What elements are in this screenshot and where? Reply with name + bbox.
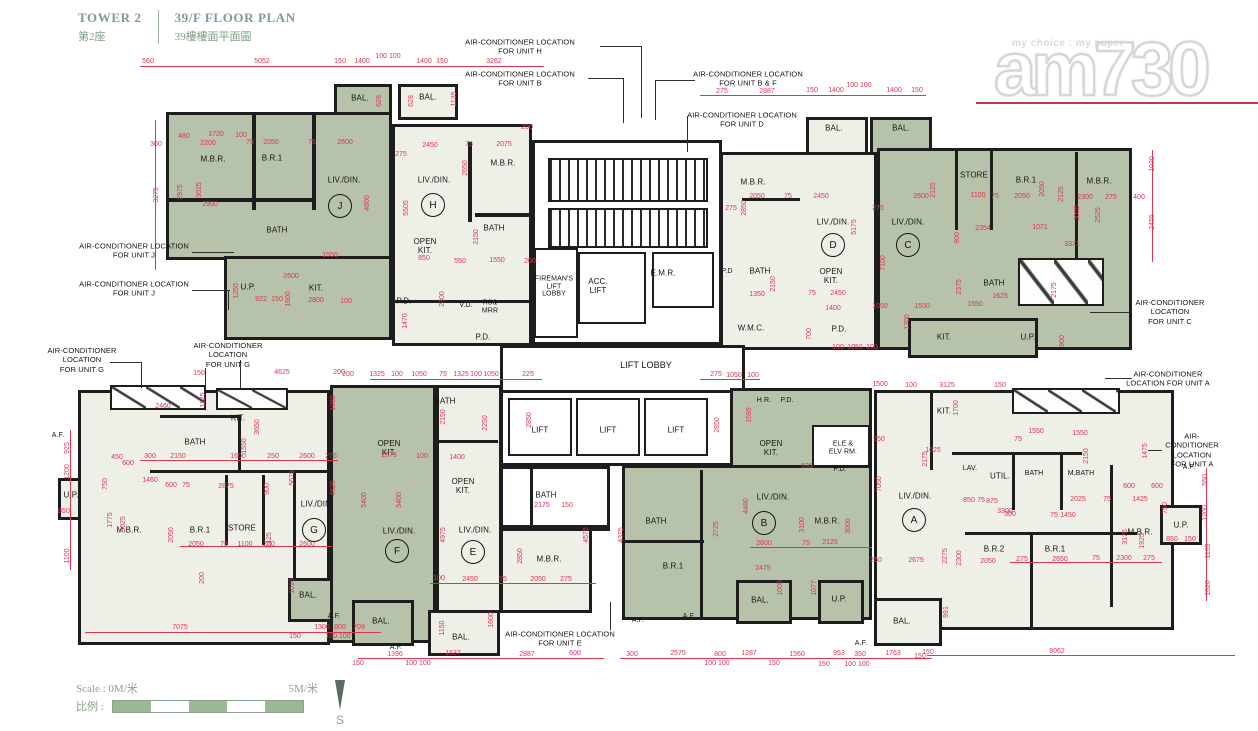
dimension-label: 2850 [517,548,525,564]
dimension-label: 1595 [746,407,754,423]
dimension-label: 900 [954,232,962,244]
scale-segment [227,701,265,712]
ac-callout-label: AIR-CONDITIONER LOCATION FOR UNIT E [505,630,615,649]
room-label: BATH [1025,470,1044,478]
dimension-label: 3000 [845,518,853,534]
scale-segment [265,701,303,712]
room-label: LIV./DIN. [418,177,451,186]
af-label: A.F. [52,432,64,440]
dimension-label: 275 [716,88,728,96]
dimension-label: 4975 [440,527,448,543]
room-label: LIV./DIN. [328,177,361,186]
dimension-label: 560 [142,58,154,66]
room-label: M.BATH [1068,470,1095,478]
room-label: ELE & ELV RM. [829,440,857,455]
dimension-label: 2600 [299,453,315,461]
dimension-label: 1470 [402,313,410,329]
dimension-label: 1400 [825,305,841,313]
dimension-label: 4800 [364,195,372,211]
wall-segment [990,150,993,230]
room-label: KIT. [937,334,951,343]
dimension-label: 5400 [361,492,369,508]
room-label: STORE [960,172,988,181]
dimension-label: 1925 [1139,533,1147,549]
dimension-label: 75 [308,139,316,147]
dimension-label: 1287 [741,650,757,658]
dimension-label: 275 [725,205,737,213]
dimension-label: 100 [905,382,917,390]
room-label: BATH [983,280,1004,289]
dimension-label: 1425 [1132,496,1148,504]
dimension-label: 2250 [482,415,490,431]
wall-segment [252,115,256,210]
dimension-label: 1050 [726,372,742,380]
dimension-label: 1350 [749,291,765,299]
dimension-label: 75 [499,576,507,584]
dimension-label: 3300 [997,508,1013,516]
dimension-label: 2575 [670,650,686,658]
dimension-label: 100 100 [325,633,350,641]
dimension-label: 75 [802,540,810,548]
room-label: W.M.C. [738,325,765,334]
dimension-label: 2600 [299,541,315,549]
scale-ratio-label: 比例 : [76,698,104,714]
wall-segment [475,213,530,217]
ac-platform [216,388,288,410]
room-label: P.D. [833,466,846,474]
wall-segment [436,440,498,443]
dimension-label: 300 [626,651,638,659]
room-label: P.D. [780,397,793,405]
dimension-label: 628 [376,95,384,107]
dimension-label: 75 [465,141,473,149]
dimension-label: 1537 [445,650,461,658]
leader-line [192,252,234,253]
wall-segment [930,392,933,470]
dimension-label: 4625 [274,369,290,377]
af-label: A.F. [683,613,695,621]
dimension-label: 800 [334,624,346,632]
room-label: B.R.1 [1045,546,1066,555]
dimension-label: 75 [439,371,447,379]
dimension-label: 150 [1184,536,1196,544]
dimension-label: 2300 [1077,194,1093,202]
room-label: LIV./DIN. [459,527,492,536]
room-label: OPEN KIT. [413,238,436,256]
dimension-label: 850 [58,508,70,516]
wall-segment [468,142,472,222]
ac-callout-label: AIR-CONDITIONER LOCATION FOR UNIT H [465,38,575,57]
dimension-label: 700 [806,328,814,340]
dimension-label: 275 [560,576,572,584]
dimension-label: 2050 [263,139,279,147]
dimension-label: 550 [1202,474,1210,486]
dimension-label: 2575 [381,452,397,460]
dimension-label: 75 [1103,496,1111,504]
dimension-label: 850 [963,497,975,505]
plan-canvas: BAL.BAL.M.B.R.B.R.1LIV./DIN.BATHU.P.KIT.… [0,0,1258,731]
dimension-label: 1077 [811,580,819,596]
dimension-label: 2475 [755,565,771,573]
dimension-label: 2950 [202,201,218,209]
dimension-label: 7075 [172,624,188,632]
south-arrow-icon [335,680,345,710]
dimension-label: 250 [870,557,882,565]
room-label: UTIL. [990,473,1010,482]
dimension-label: 2450 [422,142,438,150]
room-label: BAL. [452,634,470,643]
room-label: M.B.R. [200,156,225,165]
dimension-label: 1005 [777,580,785,596]
ac-callout-label: AIR-CONDITIONER LOCATION FOR UNIT G [194,341,263,369]
dimension-label: 75 [784,193,792,201]
room-label: U.P. [241,284,256,293]
wall-segment [168,198,313,202]
dimension-label: 1400 [416,58,432,66]
dimension-label: 1020 [1205,580,1213,596]
dimension-label: 7050 [876,476,884,492]
room-label: OPEN KIT. [759,440,782,458]
dimension-label: 2450 [462,576,478,584]
dimension-label: 1050 [330,395,338,411]
dimension-label: 1100 [64,548,72,563]
dimension-label: 2725 [713,521,721,537]
dimension-label: 1550 [1072,430,1088,438]
room-label: BATH [184,439,205,448]
dimension-label: 275 [872,205,884,213]
ac-callout-label: AIR-CONDITIONER LOCATION FOR UNIT B & F [693,70,803,89]
room-label: B.R.1 [663,563,684,572]
dimension-label: 628 [408,95,416,107]
dimension-label: 3175 [1122,529,1130,545]
dimension-label: 800 [714,651,726,659]
dimension-label: 3025 [120,516,128,532]
emr-room [652,252,714,308]
room-label: LIFT [600,427,617,436]
unit-c-kitchen [908,318,1038,358]
dimension-label: 3650 [254,419,262,435]
dimension-label: 709 [353,624,365,632]
room-label: LIV./DIN. [301,501,334,510]
dimension-label: 2887 [519,651,535,659]
dimension-label: 75 [182,482,190,490]
wall-segment [160,415,240,418]
scale-segment [113,701,151,712]
dimension-label: 1010 [289,578,297,594]
dimension-label: 100 [470,371,482,379]
dimension-label: 2450 [813,193,829,201]
unit-circle-h: H [421,193,445,217]
unit-e-mbr [500,528,592,613]
room-label: BAL. [299,592,317,601]
ac-callout-label: AIR-CONDITIONER LOCATION FOR UNIT G [48,346,117,374]
dimension-label: 2125 [930,182,938,198]
dimension-label: 1400 [449,454,465,462]
dimension-line [620,658,932,659]
room-label: B.R.1 [262,155,283,164]
dimension-line [370,379,542,380]
dimension-label: 150 [193,370,205,378]
room-label: OPEN KIT. [451,478,474,496]
wall-segment [700,470,703,618]
dimension-label: 750 [102,478,110,490]
wall-segment [1030,532,1033,627]
dimension-label: 2125 [1058,186,1066,202]
dimension-label: 150 [271,296,283,304]
dimension-label: 5052 [254,58,270,66]
dimension-label: 2050 [980,558,996,566]
dimension-label: 75 [1050,512,1058,520]
dimension-label: 1125 [200,392,208,407]
dimension-label: 2050 [188,541,204,549]
dimension-label: 300 [150,141,162,149]
dimension-line [1010,562,1162,563]
dimension-label: 100 [416,453,428,461]
dimension-label: 5675 [289,470,297,486]
dimension-label: 480 [178,133,190,141]
dimension-line [452,66,544,67]
dimension-label: 1050 [872,303,888,311]
unit-circle-a: A [902,508,926,532]
dimension-label: 1700 [953,400,961,416]
dimension-label: 1475 [1142,443,1150,459]
dimension-label: 1100 [237,541,252,549]
dimension-label: 1400 [828,87,844,95]
ac-callout-label: AIR-CONDITIONER LOCATION FOR UNIT J [79,242,189,261]
dimension-label: 1560 [789,651,805,659]
dimension-label: 2450 [830,290,846,298]
dimension-label: 5175 [851,219,859,235]
room-label: U.P. [832,596,847,605]
scale-label-start: Scale : 0M/米 [76,680,138,696]
dimension-label: 75 [220,541,228,549]
dimension-label: 1700 [904,314,912,330]
ac-platform [1018,258,1104,306]
dimension-label: 250 [263,541,275,549]
dimension-label: 150 [806,87,818,95]
dimension-label: 2455 [1149,214,1157,230]
leader-line [228,290,229,310]
dimension-label: 900 [264,483,272,495]
room-label: E.M.R. [650,270,675,279]
dimension-line [140,66,452,67]
dimension-label: 2075 [496,141,512,149]
dimension-label: 635 [801,463,813,471]
dimension-label: 2875 [218,483,234,491]
wall-segment [500,528,610,531]
ac-callout-label: AIR-CONDITIONER LOCATION FOR UNIT J [79,280,189,299]
dimension-label: 275 [325,453,337,461]
dimension-label: 1550 [1028,428,1044,436]
room-label: LIFT [532,427,549,436]
dimension-label: 200 [521,124,533,132]
room-label: LIV./DIN. [817,219,850,228]
wall-segment [622,540,704,543]
dimension-label: 4375 [618,527,626,543]
leader-line [1090,312,1130,313]
dimension-label: 2600 [756,540,772,548]
dimension-label: 2600 [913,193,929,201]
wall-segment [1060,452,1063,510]
room-label: U.P. [64,492,79,501]
dimension-label: 3125 [939,382,955,390]
room-label: BAL. [751,597,769,606]
room-label: BAL. [893,618,911,627]
dimension-label: 2850 [526,412,534,428]
ac-callout-label: AIR-CONDITIONER LOCATION FOR UNIT C [1136,298,1205,326]
dimension-label: 100 [340,298,352,306]
dimension-label: 1050 [483,371,499,379]
leader-line [641,46,642,118]
dimension-label: 7100 [880,255,888,271]
room-label: RS& MRR [482,299,498,314]
dimension-label: 2150 [473,229,481,245]
dimension-label: 1450 [1060,512,1076,520]
dimension-label: 1300 [314,624,330,632]
leader-line [600,46,642,47]
wall-segment [1012,452,1015,510]
dimension-label: 1155 [1205,543,1213,558]
room-label: BATH [645,518,666,527]
dimension-label: 150 [352,660,364,668]
dimension-label: 75 [808,290,816,298]
dimension-label: 991 [943,606,951,618]
dimension-label: 250 [267,453,279,461]
dimension-label: 150 [994,382,1006,390]
dimension-label: 150 [334,58,346,66]
dimension-label: 100 100 [846,82,871,90]
room-label: B.R.1 [1016,177,1037,186]
dimension-label: 1550 [967,301,983,309]
dimension-label: 275 [710,371,722,379]
dimension-label: 600 [569,650,581,658]
dimension-label: 2525 [1095,207,1103,223]
room-label: P.D. [832,326,847,335]
scale-label-end: 5M/米 [289,680,318,696]
dimension-label: 275 [395,151,407,159]
scale-segment [151,701,189,712]
leader-line [610,602,611,630]
room-label: BAL. [825,125,843,134]
dimension-label: 2975 [177,184,185,200]
dimension-label: 1763 [885,650,901,658]
dimension-label: 1071 [1032,224,1048,232]
compass: S [330,680,350,727]
dimension-label: 100 [391,371,403,379]
ac-callout-label: AIR-CONDITIONER LOCATION FOR UNIT A [1159,431,1225,469]
dimension-label: 875 [986,498,998,506]
af-label: A.F. [328,613,340,621]
leader-line [655,80,695,81]
dimension-label: 1460 [142,477,158,485]
room-label: P.D. [476,334,491,343]
dimension-label: 1775 [107,512,115,528]
stairs-hatch [548,158,708,202]
dimension-label: 1625 [992,293,1008,301]
dimension-label: 100 [433,575,445,583]
af-label: A.F. [855,640,867,648]
unit-circle-e: E [461,540,485,564]
dimension-label: 75 [991,193,999,201]
leader-line [623,78,624,123]
room-label: BATH [434,398,455,407]
room-label: U.P. [1174,522,1189,531]
dimension-label: 3262 [486,58,502,66]
dimension-label: 150 [911,87,923,95]
dimension-label: 250 [873,436,885,444]
unit-circle-d: D [821,233,845,257]
dimension-label: 225 [522,371,534,379]
room-label: M.B.R. [740,179,765,188]
room-label: U.P. [1021,334,1036,343]
ac-callout-label: AIR-CONDITIONER LOCATION FOR UNIT D [687,111,797,130]
dimension-line [927,655,1235,656]
room-label: B.R.2 [984,546,1005,555]
stairs-hatch [548,208,708,248]
dimension-label: 100 [747,372,759,380]
dimension-label: 100 100 [375,53,400,61]
dimension-label: 75 [246,139,254,147]
dimension-label: 5400 [396,492,404,508]
room-label: KIT. [309,285,323,294]
dimension-line [700,95,926,96]
unit-circle-f: F [385,539,409,563]
room-label: LIV./DIN. [899,493,932,502]
dimension-label: 2175 [534,502,550,510]
dimension-label: 1100 [970,192,985,200]
room-label: B.R.1 [190,527,211,536]
dimension-label: 1050 [411,371,427,379]
dimension-label: 200 [524,258,536,266]
dimension-label: 1396 [387,651,403,659]
dimension-label: 275 [1016,556,1028,564]
dimension-label: 1135 [451,91,459,106]
room-label: BAL. [419,94,437,103]
dimension-label: 600 [122,460,134,468]
room-label: BATH [535,492,556,501]
dimension-label: 100 100 [704,660,729,668]
leader-line [588,78,624,79]
south-label: S [330,713,350,727]
dimension-label: 275 [1143,555,1155,563]
unit-circle-j: J [328,194,352,218]
dimension-label: 1600 [285,291,293,307]
dimension-label: 1325 [369,371,385,379]
leader-line [141,362,142,388]
dimension-label: 2025 [1070,496,1086,504]
dimension-label: 922 [255,296,267,304]
dimension-label: 4625 [330,480,338,496]
dimension-label: 3025 [1074,205,1082,221]
room-label: M.B.R. [536,556,561,565]
dimension-label: 2150 [170,453,186,461]
dimension-label: 100 [832,344,844,352]
room-label: STORE [228,525,256,534]
dimension-label: 2150 [1083,448,1091,464]
ac-platform [1012,388,1120,414]
dimension-label: 100 [866,344,878,352]
dimension-label: 2275 [942,548,950,564]
room-label: P.D [721,268,732,276]
dimension-label: 600 [1151,483,1163,491]
dimension-label: 2125 [822,539,838,547]
dimension-label: 100 100 [844,661,869,669]
room-label: LAV. [963,465,977,473]
wall-segment [293,470,296,580]
dimension-label: 75 [1014,436,1022,444]
dimension-label: 2300 [956,550,964,566]
unit-circle-c: C [896,233,920,257]
